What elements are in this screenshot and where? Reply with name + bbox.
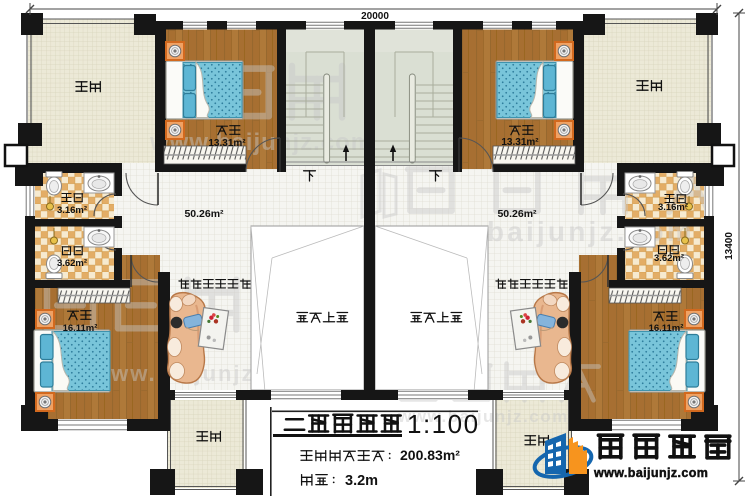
svg-text:200.83m²: 200.83m² xyxy=(400,447,460,463)
svg-text:50.26m²: 50.26m² xyxy=(184,208,224,220)
svg-text:3.62m²: 3.62m² xyxy=(57,258,87,269)
svg-text:3.16m²: 3.16m² xyxy=(658,202,688,213)
svg-text:3.62m²: 3.62m² xyxy=(654,253,684,264)
svg-text:1:100: 1:100 xyxy=(407,409,480,439)
svg-text:www.baijunjz.com: www.baijunjz.com xyxy=(593,466,708,480)
svg-text:3.2m: 3.2m xyxy=(345,473,378,489)
svg-text:3.16m²: 3.16m² xyxy=(57,205,87,216)
svg-text:13400: 13400 xyxy=(724,232,735,260)
svg-text:50.26m²: 50.26m² xyxy=(497,208,537,220)
svg-text:20000: 20000 xyxy=(361,11,389,22)
svg-text:16.11m²: 16.11m² xyxy=(63,323,98,334)
svg-text:16.11m²: 16.11m² xyxy=(649,323,684,334)
svg-text:13.31m²: 13.31m² xyxy=(208,138,246,149)
svg-text:13.31m²: 13.31m² xyxy=(501,137,539,148)
